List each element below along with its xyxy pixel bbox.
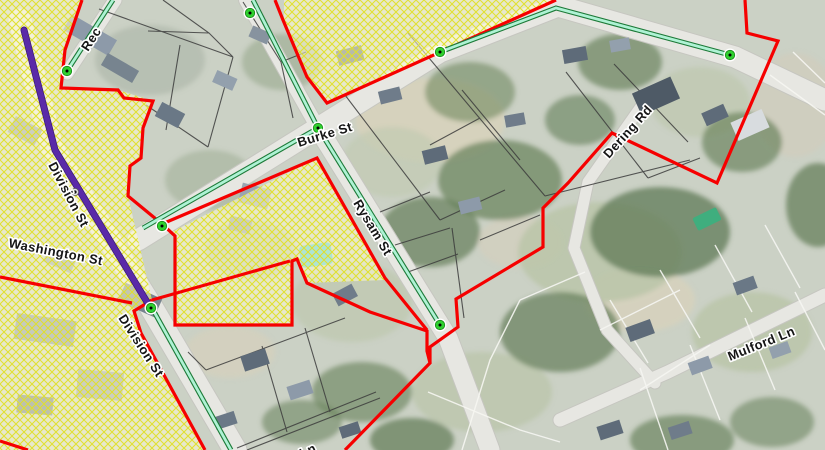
street-node: [244, 7, 257, 20]
street-node: [434, 46, 447, 59]
street-node: [434, 319, 447, 332]
map-viewport[interactable]: RecDivision StWashington StDivision StBu…: [0, 0, 825, 450]
street-node: [156, 220, 169, 233]
street-node: [61, 65, 74, 78]
map-canvas: RecDivision StWashington StDivision StBu…: [0, 0, 825, 450]
street-node: [724, 49, 737, 62]
street-node: [145, 302, 158, 315]
